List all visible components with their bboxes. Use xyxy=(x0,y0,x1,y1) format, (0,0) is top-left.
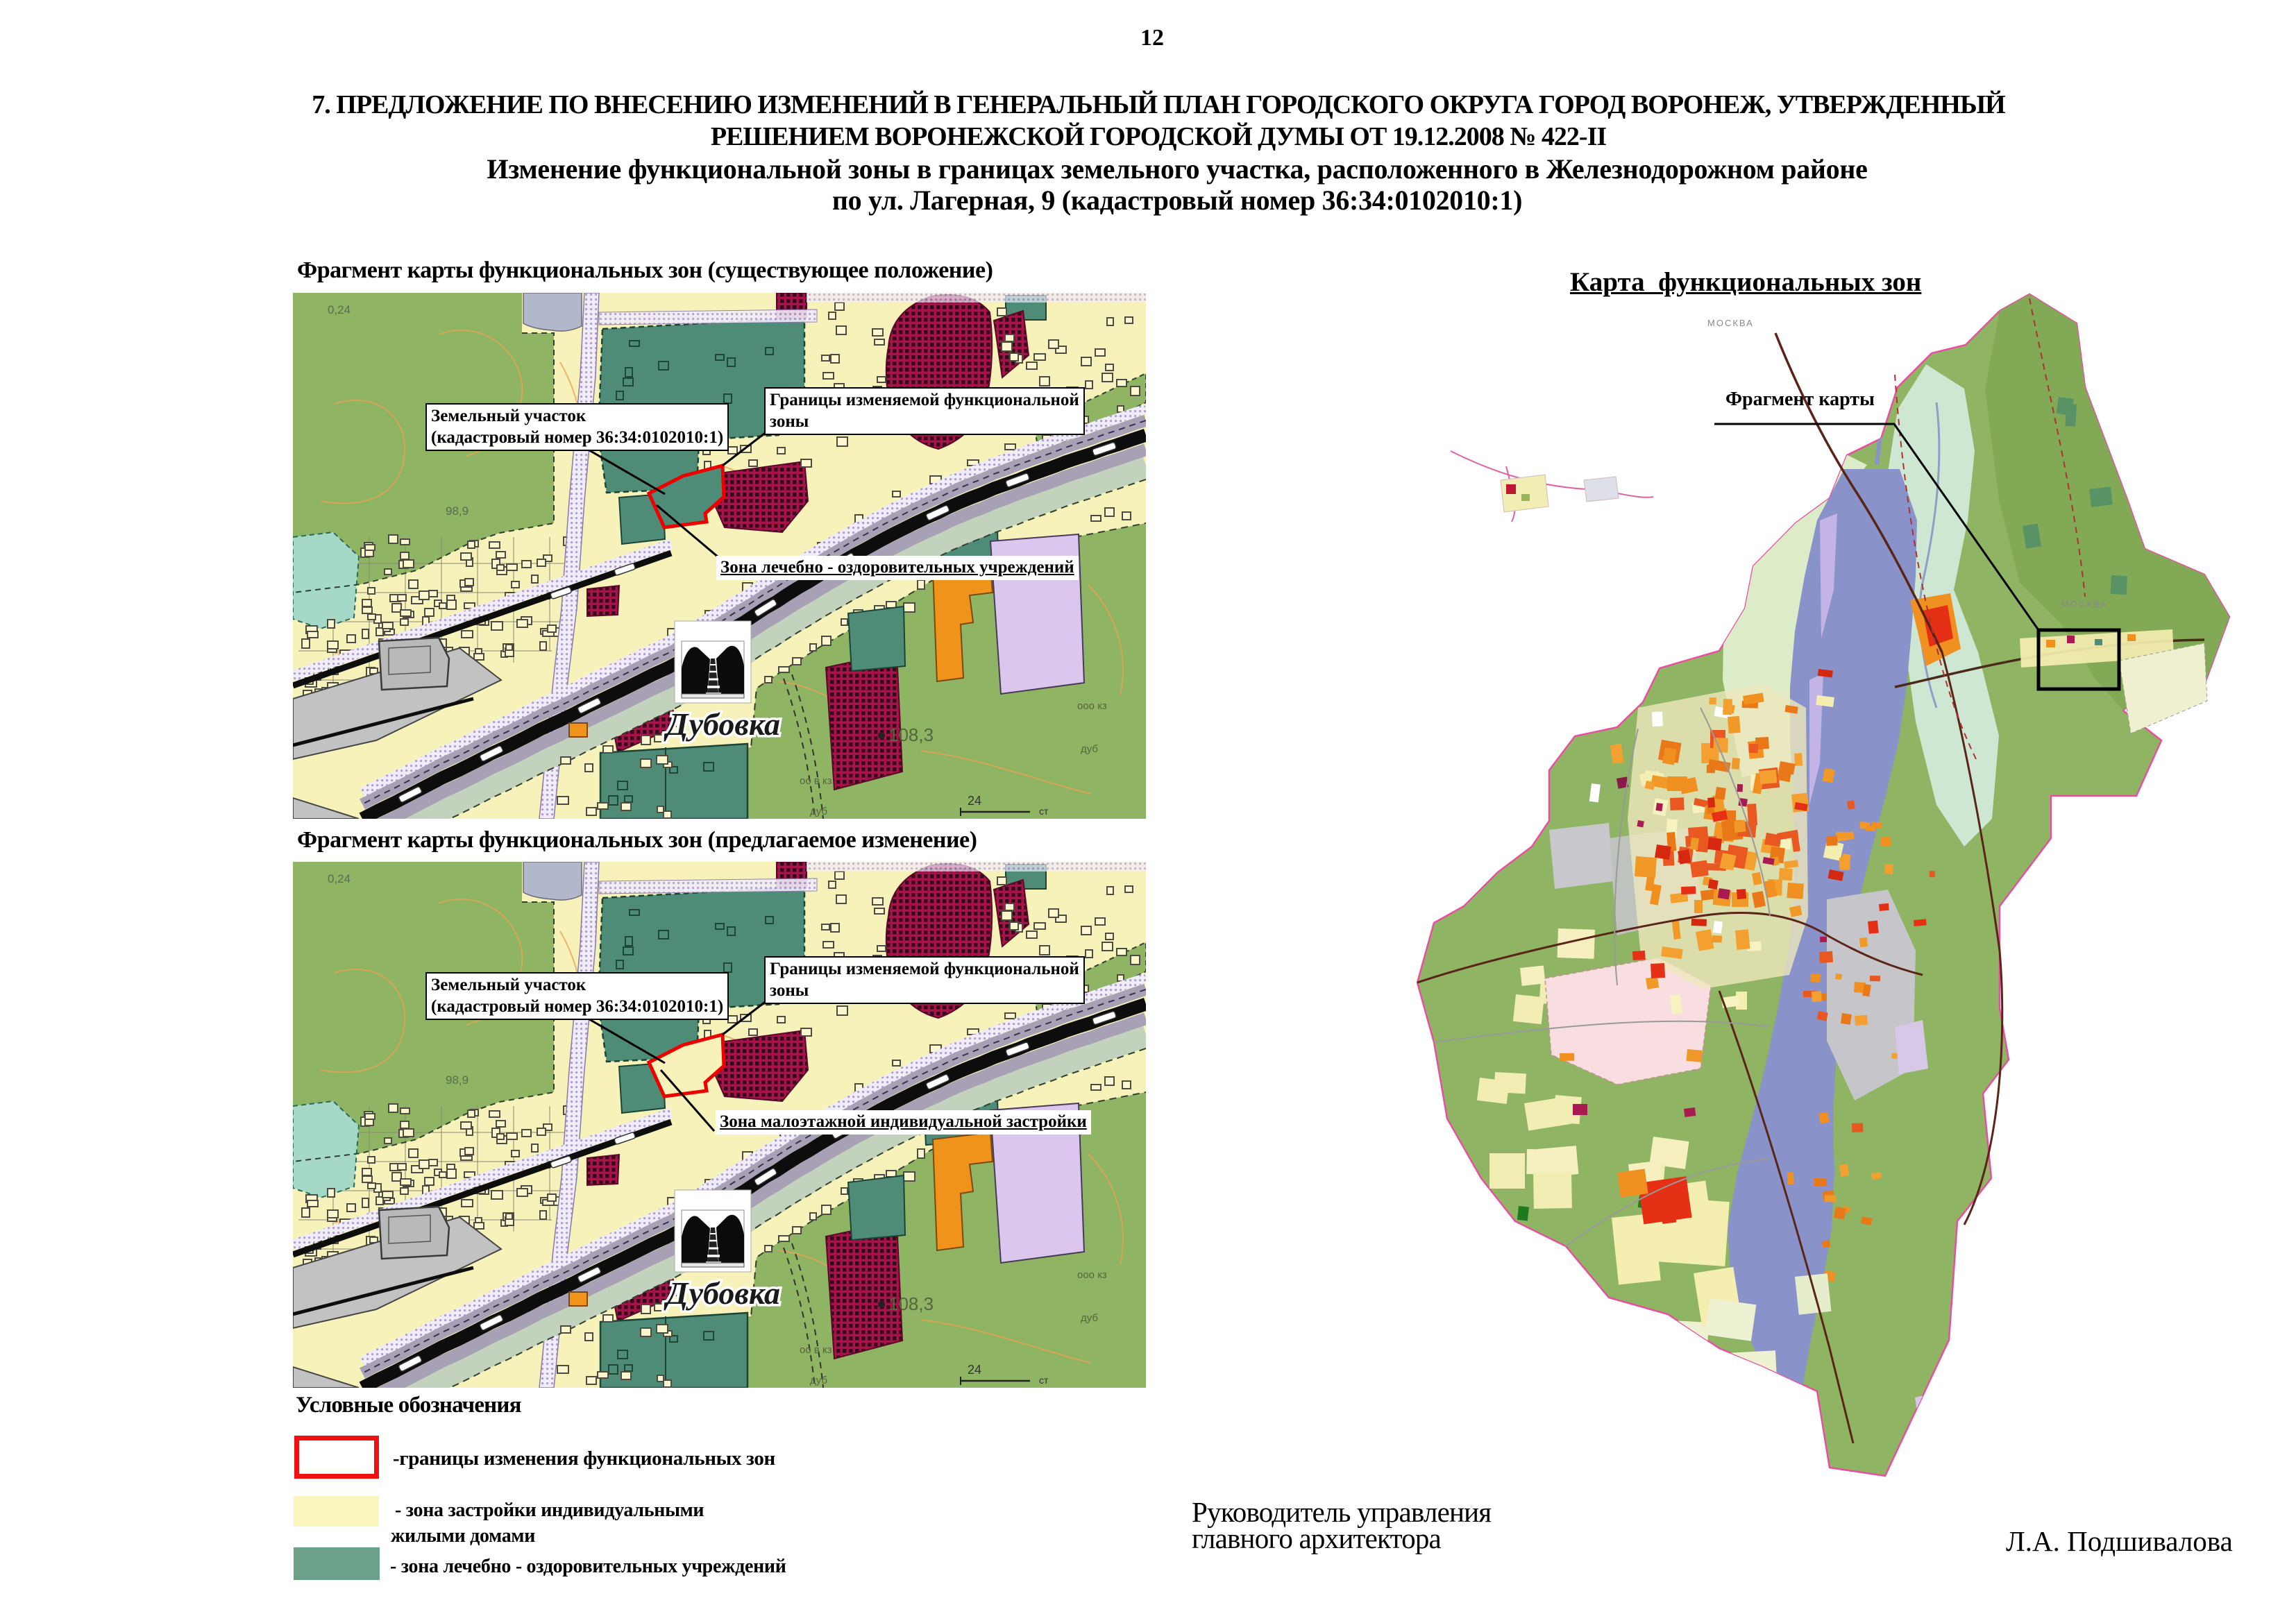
svg-text:МОСКВА: МОСКВА xyxy=(2061,599,2108,609)
svg-text:МОСКВА: МОСКВА xyxy=(1707,318,1754,328)
